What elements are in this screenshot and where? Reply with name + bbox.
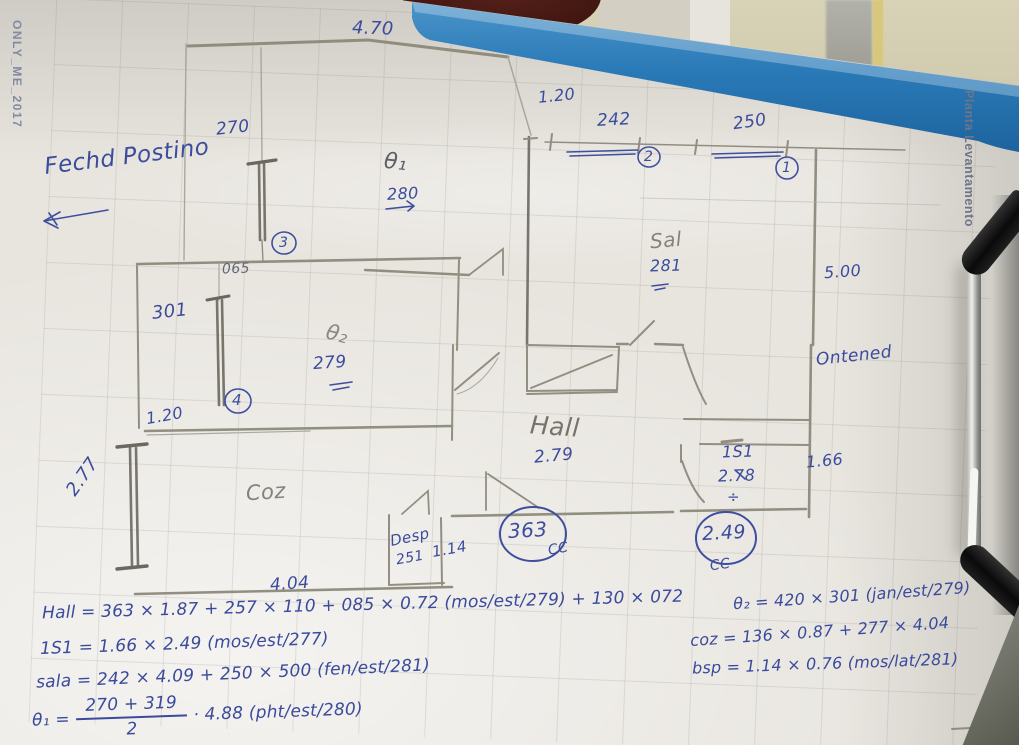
dim-hall-279: 2.79 [533, 446, 574, 466]
dim-166: 1.66 [805, 451, 843, 470]
room-label-hall: Hall [529, 412, 580, 440]
room-label-coz: Coz [245, 481, 286, 505]
marker-2: 2 [644, 150, 653, 164]
dim-281: 281 [650, 257, 682, 274]
dim-404: 4.04 [269, 575, 310, 595]
dim-278: 2.78 [718, 467, 756, 484]
formula-theta1-lhs: θ₁ = [32, 711, 70, 729]
room-label-is1: 1S1 [722, 443, 754, 460]
dim-120-top: 1.20 [537, 86, 576, 106]
dim-242: 242 [597, 111, 631, 130]
tick-279 [330, 382, 352, 390]
dim-250: 250 [732, 112, 768, 134]
dim-500: 5.00 [823, 263, 861, 282]
cc-mark-right: CC [709, 557, 731, 574]
marker-1: 1 [782, 161, 791, 175]
dim-470: 4.70 [352, 19, 394, 38]
dim-065: 065 [222, 262, 250, 277]
marker-3: 3 [279, 236, 288, 250]
dim-363-circled: 363 [508, 519, 548, 541]
cc-mark-left: CC [547, 540, 569, 557]
dim-249-circled: 2.49 [702, 523, 747, 544]
arrow-left [44, 210, 108, 228]
dim-280: 280 [387, 185, 420, 203]
underline-242 [567, 150, 638, 156]
photo-watermark: ONLY_ME_2017 [10, 20, 24, 128]
marker-4: 4 [232, 393, 242, 408]
room-label-sal: Sal [649, 229, 682, 252]
photo-of-floorplan-sketch: ONLY_ME_2017 Planta Levantamento Fechd P… [0, 0, 1019, 745]
dim-301: 301 [151, 301, 188, 323]
dim-270: 270 [215, 118, 250, 138]
formula-theta1-fraction: 270 + 319 2 [75, 694, 188, 740]
formula-theta1-denominator: 2 [126, 718, 138, 738]
formula-theta1-numerator: 270 + 319 [75, 694, 187, 720]
formula-theta1-rest: · 4.88 (pht/est/280) [193, 701, 363, 724]
room-label-theta1: θ₁ [383, 151, 408, 175]
underline-250 [712, 152, 783, 158]
tick-281 [652, 284, 668, 290]
dim-279: 279 [312, 354, 347, 373]
sheet-side-label: Planta Levantamento [962, 90, 976, 227]
divide-mark: ÷ [727, 490, 740, 505]
